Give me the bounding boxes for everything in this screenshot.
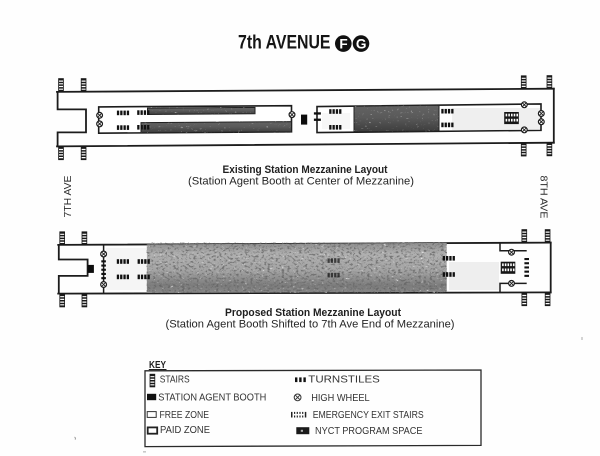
svg-text:7TH AVE: 7TH AVE — [63, 175, 74, 217]
svg-text:HIGH WHEEL: HIGH WHEEL — [311, 393, 370, 404]
svg-text:STAIRS: STAIRS — [160, 374, 190, 385]
svg-text:(Station Agent Booth at Center: (Station Agent Booth at Center of Mezzan… — [188, 176, 414, 188]
svg-text:EMERGENCY EXIT STAIRS: EMERGENCY EXIT STAIRS — [313, 410, 424, 421]
svg-text:FREE ZONE: FREE ZONE — [160, 410, 210, 421]
svg-text:NYCT PROGRAM SPACE: NYCT PROGRAM SPACE — [315, 426, 423, 437]
svg-text:PAID ZONE: PAID ZONE — [160, 425, 210, 436]
svg-text:G: G — [356, 37, 367, 52]
svg-text:8TH AVE: 8TH AVE — [538, 176, 549, 219]
svg-text:Existing Station Mezzanine Lay: Existing Station Mezzanine Layout — [223, 164, 388, 176]
svg-text:Proposed Station Mezzanine Lay: Proposed Station Mezzanine Layout — [225, 307, 401, 319]
svg-text:(Station Agent Booth Shifted t: (Station Agent Booth Shifted to 7th Ave … — [166, 318, 455, 330]
svg-text:TURNSTILES: TURNSTILES — [308, 374, 380, 385]
svg-text:STATION AGENT BOOTH: STATION AGENT BOOTH — [158, 392, 266, 403]
svg-text:7th AVENUE: 7th AVENUE — [238, 33, 331, 54]
svg-text:F: F — [339, 37, 347, 52]
